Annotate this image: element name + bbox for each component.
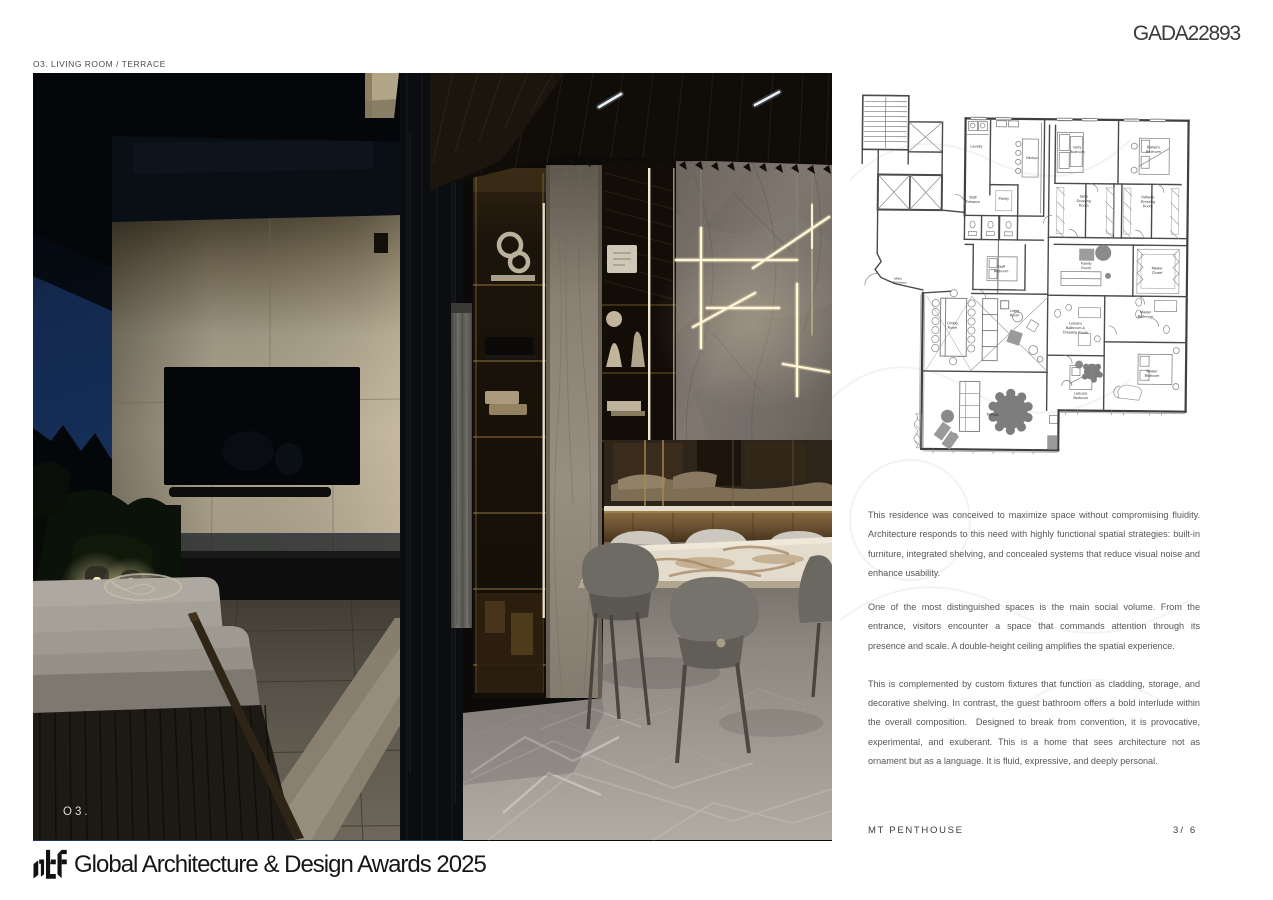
svg-text:Bedroom: Bedroom bbox=[1145, 374, 1160, 378]
svg-text:Room: Room bbox=[1010, 313, 1020, 317]
svg-text:Room: Room bbox=[1143, 204, 1153, 208]
svg-text:Dressing: Dressing bbox=[1141, 200, 1155, 204]
svg-text:Terrace: Terrace bbox=[987, 413, 999, 417]
svg-text:Master: Master bbox=[1140, 310, 1152, 314]
svg-text:Leticia's: Leticia's bbox=[1069, 321, 1082, 325]
svg-text:Master: Master bbox=[1152, 266, 1164, 270]
svg-text:Family: Family bbox=[1081, 262, 1092, 266]
svg-text:Room: Room bbox=[1079, 204, 1089, 208]
svg-text:Staff: Staff bbox=[969, 195, 976, 199]
svg-text:Bedroom: Bedroom bbox=[994, 269, 1009, 273]
svg-text:Pantry: Pantry bbox=[999, 197, 1010, 201]
svg-text:Bedroom: Bedroom bbox=[1073, 396, 1088, 400]
svg-text:Closet: Closet bbox=[1152, 271, 1162, 275]
svg-text:Room: Room bbox=[1081, 266, 1091, 270]
svg-text:O3.: O3. bbox=[63, 806, 91, 818]
svg-text:Bedroom: Bedroom bbox=[1146, 150, 1161, 154]
svg-text:Rafael's: Rafael's bbox=[1141, 195, 1154, 199]
svg-text:Room: Room bbox=[948, 326, 958, 330]
svg-text:Dressing: Dressing bbox=[1077, 199, 1091, 203]
svg-text:Bathroom: Bathroom bbox=[1138, 315, 1154, 319]
svg-text:Living: Living bbox=[1010, 309, 1019, 313]
svg-text:Master: Master bbox=[1146, 369, 1158, 373]
svg-text:Staff: Staff bbox=[997, 265, 1004, 269]
svg-text:Leticia's: Leticia's bbox=[1074, 392, 1087, 396]
svg-text:Rafael's: Rafael's bbox=[1147, 145, 1160, 149]
svg-text:Dressing Room: Dressing Room bbox=[1063, 330, 1088, 334]
svg-text:Laundry: Laundry bbox=[970, 144, 983, 148]
svg-text:Kitchen: Kitchen bbox=[1026, 156, 1038, 160]
svg-text:Entrance: Entrance bbox=[966, 200, 980, 204]
svg-text:Entrance: Entrance bbox=[893, 281, 907, 285]
svg-text:Bedroom: Bedroom bbox=[1070, 150, 1085, 154]
svg-text:Girl's: Girl's bbox=[1080, 195, 1088, 199]
svg-text:Dining: Dining bbox=[947, 321, 957, 325]
svg-text:Girl's: Girl's bbox=[1073, 145, 1081, 149]
